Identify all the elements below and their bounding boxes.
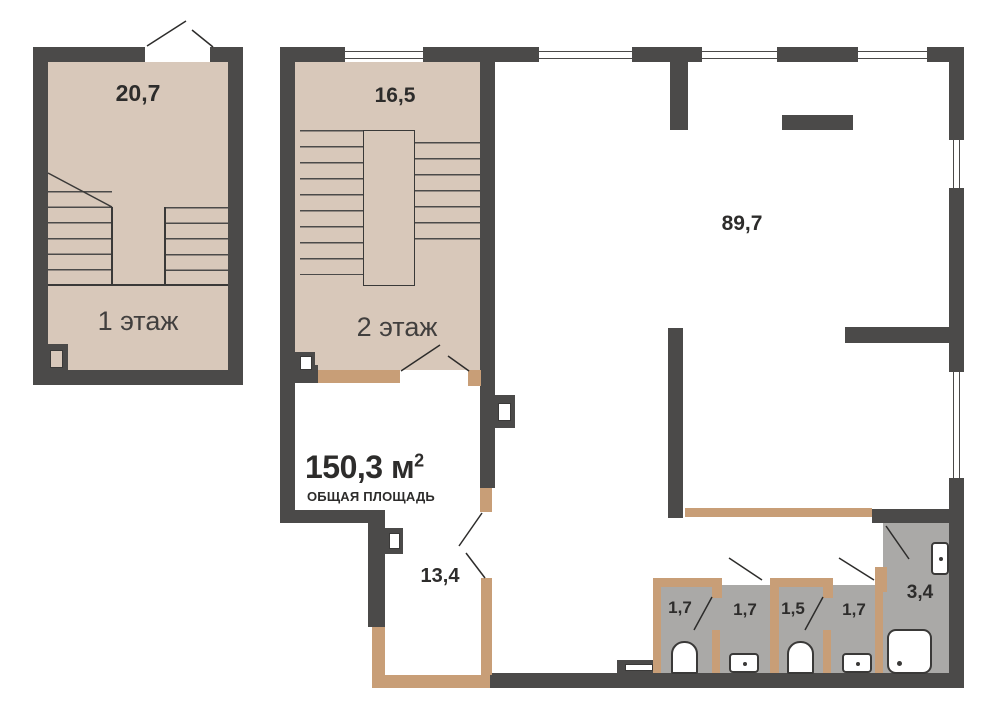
floor-plan-canvas: 20,7 1 этаж [0,0,1000,713]
loggia-wall-bottom [372,675,490,688]
wall-over-bathroom [872,509,952,523]
floor1-stairs-edge-right [164,207,166,285]
toilet-icon [671,641,698,674]
floor1-stairs-edge-left [111,207,113,285]
door-swing-line [459,513,482,546]
floor2-name-label: 2 этаж [337,312,457,343]
wet-room-area-label: 1,5 [772,599,814,619]
wet-room-area-label: 1,7 [832,600,876,620]
window-top-2 [702,47,777,62]
door-swing-line [147,21,186,46]
wet-partition-top-b [770,578,833,587]
sill-hall-door [480,488,492,512]
floor1-wall-left [33,47,48,385]
shaft-living-room-inner [498,403,511,421]
wet-partition-left [653,578,661,673]
total-area-value: 150,3 м2 [305,449,424,486]
window-top-1 [539,47,632,62]
floor1-stairs-right-flight [165,207,228,285]
total-area-number: 150,3 м [305,449,414,485]
living-room-area-label: 89,7 [692,212,792,236]
window-top-3 [858,47,927,62]
window-frame [538,51,633,59]
floor1-wall-top-left [33,47,145,62]
wet-room-area-label: 1,7 [723,600,767,620]
window-right-2 [950,372,963,478]
floor1-stairs-left-flight [48,191,112,285]
window-frame [953,139,960,189]
floor2-stairs-void [363,130,415,286]
loggia-partition-right [481,578,492,675]
wet-partition-2 [770,578,779,673]
total-area-caption: ОБЩАЯ ПЛОЩАДЬ [307,489,435,504]
wall-right-seg1 [949,47,964,140]
partition-stair-room [318,370,400,383]
faucet-dot [856,662,860,666]
wall-left-lower [368,523,385,627]
window-frame [344,51,424,59]
faucet-dot [939,557,943,561]
floor2-stairs-right-flight [415,142,480,249]
wall-interior-vertical [668,328,683,518]
floor1-name-label: 1 этаж [48,306,228,337]
window-right-1 [950,140,963,188]
wall-top-seg3 [632,47,702,62]
sink-icon [729,653,759,673]
wet-room-area-label: 1,7 [659,598,701,618]
wall-left [280,47,295,510]
door-swing-line [839,558,874,580]
wall-island [782,115,853,130]
stair-room-area-label: 16,5 [345,84,445,108]
threshold-corridor [685,508,872,517]
wall-bottom [488,673,963,688]
hall-area-label: 13,4 [405,565,475,588]
floor2-stairs-left-flight [300,130,363,275]
wet-room-area-label: 3,4 [896,582,944,604]
wall-top-seg4 [777,47,858,62]
toilet-icon [787,641,814,674]
door-swing-line [729,558,762,580]
wet-jamb-b [823,587,833,598]
floor1-shaft-inner [50,350,63,368]
floor1-stairs-landing-line [48,284,228,286]
window-frame [953,371,960,479]
bathtub-icon [887,629,932,674]
window-top-stair [345,47,423,62]
drain-dot [897,661,902,666]
shaft-hall-inner [389,533,400,549]
wall-stub-right [845,327,949,343]
window-frame [857,51,928,59]
sink-icon [842,653,872,673]
floor1-area-label: 20,7 [68,80,208,107]
window-frame [701,51,778,59]
wall-top-seg2 [423,47,539,62]
sill-stair-room-door [468,370,481,386]
wet-partition-3 [823,630,831,673]
sink-icon [931,542,949,575]
faucet-dot [743,662,747,666]
wet-jamb-a [712,587,722,598]
wet-partition-1 [712,630,720,673]
wall-left-jog [280,510,385,523]
wet-partition-top-a [653,578,722,587]
total-area-sup: 2 [414,450,424,470]
floor1-wall-right [228,47,243,385]
door-swing-line [192,30,213,47]
vent-niche-slot [625,664,653,671]
wall-stub-top [670,62,688,130]
wet-partition-4-cap [875,567,887,592]
wall-right-seg2 [949,188,964,372]
shaft-stair-room-inner [300,356,312,370]
